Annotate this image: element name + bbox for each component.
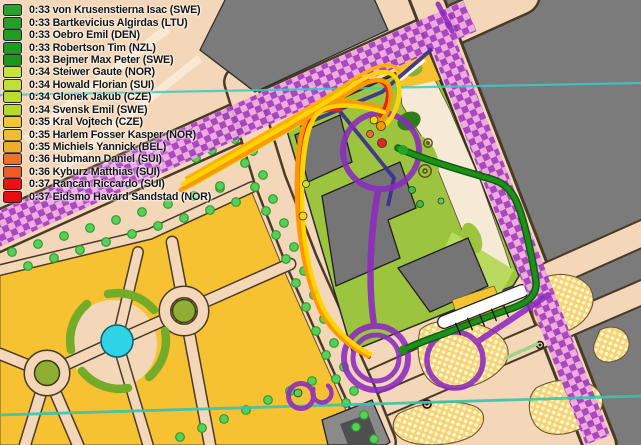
- runner-label: 0:35 Kral Vojtech (CZE): [29, 116, 143, 128]
- runner-color-swatch: [3, 66, 22, 78]
- runner-legend-panel: 0:33 von Krusenstierna Isac (SWE) 0:33 B…: [3, 4, 211, 203]
- runner-label: 0:33 Oebro Emil (DEN): [29, 29, 140, 41]
- legend-row[interactable]: 0:35 Harlem Fosser Kasper (NOR): [3, 128, 211, 140]
- runner-label: 0:37 Eidsmo Havard Sandstad (NOR): [29, 191, 211, 203]
- runner-color-swatch: [3, 191, 22, 203]
- legend-row[interactable]: 0:34 Howald Florian (SUI): [3, 79, 211, 91]
- legend-row[interactable]: 0:33 Oebro Emil (DEN): [3, 29, 211, 41]
- runner-color-swatch: [3, 129, 22, 141]
- legend-row[interactable]: 0:36 Hubmann Daniel (SUI): [3, 153, 211, 165]
- runner-color-swatch: [3, 141, 22, 153]
- legend-row[interactable]: 0:33 von Krusenstierna Isac (SWE): [3, 4, 211, 16]
- runner-color-swatch: [3, 153, 22, 165]
- runner-label: 0:36 Kyburz Matthias (SUI): [29, 166, 160, 178]
- legend-row[interactable]: 0:34 Steiwer Gaute (NOR): [3, 66, 211, 78]
- legend-row[interactable]: 0:33 Robertson Tim (NZL): [3, 41, 211, 53]
- legend-row[interactable]: 0:35 Michiels Yannick (BEL): [3, 141, 211, 153]
- runner-label: 0:33 von Krusenstierna Isac (SWE): [29, 4, 200, 16]
- garden-hub-tree: [35, 361, 60, 386]
- runner-color-swatch: [3, 17, 22, 29]
- runner-color-swatch: [3, 29, 22, 41]
- garden-pond: [101, 325, 133, 357]
- runner-color-swatch: [3, 166, 22, 178]
- runner-label: 0:33 Robertson Tim (NZL): [29, 42, 156, 54]
- legend-row[interactable]: 0:34 Glonek Jakub (CZE): [3, 91, 211, 103]
- gps-tracking-app: 0:33 von Krusenstierna Isac (SWE) 0:33 B…: [0, 0, 641, 445]
- runner-label: 0:35 Harlem Fosser Kasper (NOR): [29, 129, 196, 141]
- runner-label: 0:37 Rancan Riccardo (SUI): [29, 178, 165, 190]
- runner-label: 0:33 Bejmer Max Peter (SWE): [29, 54, 173, 66]
- runner-color-swatch: [3, 4, 22, 16]
- legend-row[interactable]: 0:34 Svensk Emil (SWE): [3, 104, 211, 116]
- runner-color-swatch: [3, 54, 22, 66]
- legend-row[interactable]: 0:36 Kyburz Matthias (SUI): [3, 166, 211, 178]
- runner-color-swatch: [3, 104, 22, 116]
- runner-label: 0:34 Steiwer Gaute (NOR): [29, 66, 155, 78]
- runner-color-swatch: [3, 178, 22, 190]
- runner-color-swatch: [3, 42, 22, 54]
- runner-label: 0:36 Hubmann Daniel (SUI): [29, 153, 162, 165]
- legend-row[interactable]: 0:37 Rancan Riccardo (SUI): [3, 178, 211, 190]
- runner-color-swatch: [3, 79, 22, 91]
- legend-row[interactable]: 0:33 Bartkevicius Algirdas (LTU): [3, 16, 211, 28]
- runner-label: 0:34 Howald Florian (SUI): [29, 79, 154, 91]
- legend-row[interactable]: 0:33 Bejmer Max Peter (SWE): [3, 54, 211, 66]
- runner-color-swatch: [3, 116, 22, 128]
- legend-row[interactable]: 0:37 Eidsmo Havard Sandstad (NOR): [3, 191, 211, 203]
- runner-label: 0:34 Svensk Emil (SWE): [29, 104, 147, 116]
- runner-label: 0:33 Bartkevicius Algirdas (LTU): [29, 17, 188, 29]
- legend-row[interactable]: 0:35 Kral Vojtech (CZE): [3, 116, 211, 128]
- runner-label: 0:35 Michiels Yannick (BEL): [29, 141, 166, 153]
- garden-hub-tree: [173, 300, 196, 323]
- runner-color-swatch: [3, 91, 22, 103]
- runner-label: 0:34 Glonek Jakub (CZE): [29, 91, 151, 103]
